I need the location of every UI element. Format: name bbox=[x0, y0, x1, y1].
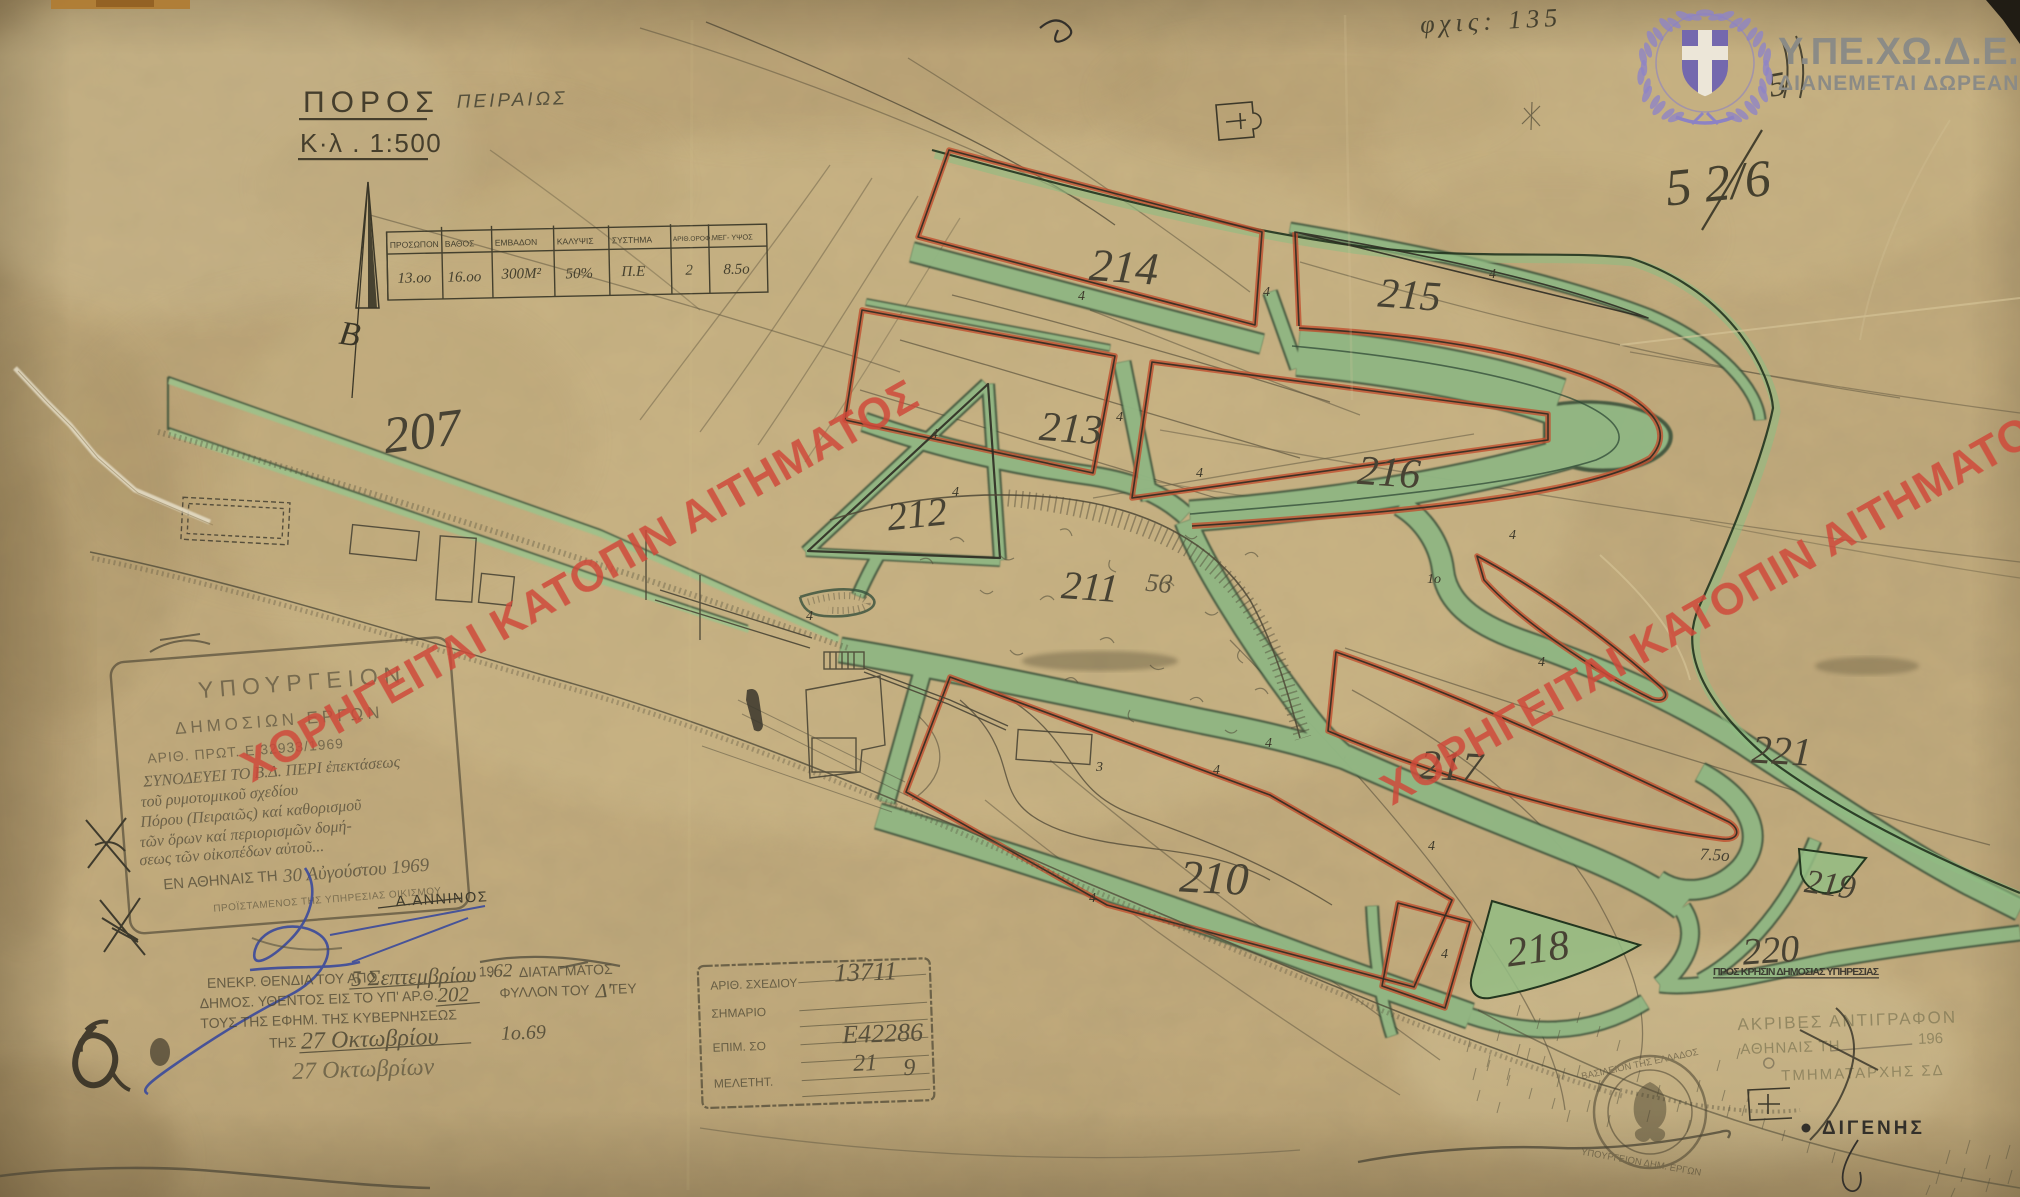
svg-text:ΠΟΡΟΣ: ΠΟΡΟΣ bbox=[303, 86, 440, 119]
svg-text:Υ.ΠΕ.ΧΩ.Δ.Ε.: Υ.ΠΕ.ΧΩ.Δ.Ε. bbox=[1778, 31, 2019, 73]
svg-text:.62: .62 bbox=[488, 960, 513, 982]
svg-text:27 Οκτωβρίου: 27 Οκτωβρίου bbox=[301, 1024, 439, 1055]
svg-text:ΔΙΑΝΕΜΕΤΑΙ ΔΩΡΕΑΝ: ΔΙΑΝΕΜΕΤΑΙ ΔΩΡΕΑΝ bbox=[1778, 72, 2019, 95]
svg-text:4: 4 bbox=[1489, 267, 1496, 282]
svg-text:4: 4 bbox=[1428, 839, 1435, 854]
svg-text:ΔΙΑΤΑΓΜΑΤΟΣ: ΔΙΑΤΑΓΜΑΤΟΣ bbox=[518, 961, 613, 980]
svg-text:ΠΡΟΣ ΚΡΗΣΙΝ ΔΗΜΟΣΙΑΣ ΥΠΗΡΕΣΙΑΣ: ΠΡΟΣ ΚΡΗΣΙΝ ΔΗΜΟΣΙΑΣ ΥΠΗΡΕΣΙΑΣ bbox=[1713, 966, 1879, 978]
svg-text:21: 21 bbox=[853, 1050, 878, 1077]
svg-text:207: 207 bbox=[380, 399, 466, 465]
svg-text:Ε42286: Ε42286 bbox=[841, 1017, 924, 1049]
svg-text:196: 196 bbox=[1918, 1030, 1944, 1048]
svg-text:ΕΠΙΜ. ΣΟ: ΕΠΙΜ. ΣΟ bbox=[712, 1039, 766, 1055]
svg-text:5ϐ: 5ϐ bbox=[1144, 568, 1173, 600]
svg-text:ΕΜΒΑΔΟΝ: ΕΜΒΑΔΟΝ bbox=[495, 237, 538, 248]
svg-text:4: 4 bbox=[1441, 947, 1448, 962]
svg-text:4: 4 bbox=[952, 485, 959, 500]
svg-text:211: 211 bbox=[1060, 562, 1120, 611]
svg-text:218: 218 bbox=[1503, 922, 1572, 976]
svg-text:216: 216 bbox=[1356, 448, 1422, 498]
svg-text:ΜΕΓ- ΥΨΟΣ: ΜΕΓ- ΥΨΟΣ bbox=[712, 232, 754, 242]
svg-text:ΒΑΘΟΣ: ΒΑΘΟΣ bbox=[445, 238, 475, 249]
svg-text:214: 214 bbox=[1088, 239, 1160, 295]
svg-text:ΣΗΜΑΡΙΟ: ΣΗΜΑΡΙΟ bbox=[711, 1005, 766, 1021]
svg-text:300Μ²: 300Μ² bbox=[500, 266, 541, 283]
svg-text:213: 213 bbox=[1038, 404, 1104, 454]
svg-text:ΤΕΥ: ΤΕΥ bbox=[609, 980, 637, 997]
svg-text:27 Οκτωβρίων: 27 Οκτωβρίων bbox=[292, 1054, 435, 1085]
svg-text:Π.Ε: Π.Ε bbox=[620, 264, 645, 281]
svg-text:16.οο: 16.οο bbox=[447, 269, 482, 286]
svg-text:4: 4 bbox=[1263, 285, 1270, 300]
svg-text:4: 4 bbox=[1265, 736, 1272, 751]
svg-text:9: 9 bbox=[903, 1055, 916, 1081]
svg-text:3: 3 bbox=[1095, 760, 1103, 775]
svg-text:210: 210 bbox=[1178, 850, 1250, 905]
svg-text:219: 219 bbox=[1802, 863, 1858, 907]
svg-text:215: 215 bbox=[1376, 271, 1442, 321]
svg-text:7.5ο: 7.5ο bbox=[1699, 844, 1730, 865]
svg-text:4: 4 bbox=[806, 609, 813, 624]
svg-text:ΔΙΓΕΝΗΣ: ΔΙΓΕΝΗΣ bbox=[1822, 1118, 1925, 1139]
svg-text:8.5ο: 8.5ο bbox=[723, 261, 750, 278]
svg-text:ΑΘΗΝΑΙΣ ΤΗ: ΑΘΗΝΑΙΣ ΤΗ bbox=[1740, 1038, 1841, 1058]
svg-text:ΠΡΟΣΩΠΟΝ: ΠΡΟΣΩΠΟΝ bbox=[390, 239, 439, 250]
svg-text:4: 4 bbox=[1213, 763, 1220, 778]
svg-text:4: 4 bbox=[1089, 891, 1096, 906]
svg-text:4: 4 bbox=[931, 427, 938, 442]
svg-text:ΦΥΛΛΟΝ ΤΟΥ: ΦΥΛΛΟΝ ΤΟΥ bbox=[499, 982, 590, 1001]
svg-text:13711: 13711 bbox=[834, 956, 898, 987]
svg-text:Δ': Δ' bbox=[594, 980, 612, 1003]
svg-text:ΜΕΛΕΤΗΤ.: ΜΕΛΕΤΗΤ. bbox=[714, 1075, 774, 1091]
svg-text:ΣΥΣΤΗΜΑ: ΣΥΣΤΗΜΑ bbox=[612, 234, 653, 245]
svg-text:4: 4 bbox=[1196, 466, 1203, 481]
svg-text:1ο: 1ο bbox=[1427, 572, 1441, 587]
svg-text:50%: 50% bbox=[565, 266, 593, 283]
svg-text:4: 4 bbox=[1116, 410, 1123, 425]
svg-text:1ο.69: 1ο.69 bbox=[501, 1021, 547, 1045]
svg-text:4: 4 bbox=[1509, 528, 1516, 543]
svg-text:4: 4 bbox=[1538, 655, 1545, 670]
svg-text:5 2/6: 5 2/6 bbox=[1663, 150, 1774, 218]
svg-text:212: 212 bbox=[885, 488, 949, 539]
svg-text:Κ·λ . 1:500: Κ·λ . 1:500 bbox=[300, 128, 442, 158]
svg-text:4: 4 bbox=[1078, 289, 1085, 304]
svg-text:ΚΑΛΥΨΙΣ: ΚΑΛΥΨΙΣ bbox=[557, 236, 594, 247]
svg-text:13.οο: 13.οο bbox=[397, 270, 432, 287]
svg-text:ΤΗΣ: ΤΗΣ bbox=[269, 1034, 297, 1051]
svg-text:ΠΕΙΡΑΙΩΣ: ΠΕΙΡΑΙΩΣ bbox=[456, 88, 567, 113]
svg-text:221: 221 bbox=[1751, 727, 1813, 775]
